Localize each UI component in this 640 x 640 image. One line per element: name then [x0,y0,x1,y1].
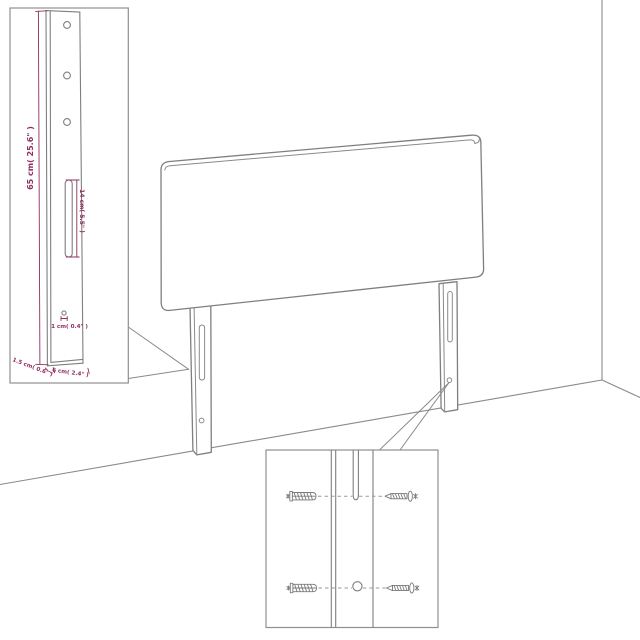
leg-detail-inset: 65 cm( 25.6" ) 14 cm( 5.5" ) 1 cm( 0.4" … [10,8,128,383]
headboard-panel [161,135,484,310]
inset-frame [266,450,438,628]
callout-line [128,327,188,369]
callout-line [400,383,449,450]
hardware-detail-inset [266,450,438,628]
headboard [161,135,484,455]
panel-outline [161,135,484,310]
assembly-diagram: 65 cm( 25.6" ) 14 cm( 5.5" ) 1 cm( 0.4" … [0,0,640,640]
wall-plug-icon [287,583,317,592]
headboard-left-leg [190,304,211,455]
right-leg-slot [448,292,453,342]
left-leg-slot [199,325,204,380]
dimension-height-label: 65 cm( 25.6" ) [26,126,35,190]
right-leg-hole [447,378,452,383]
leg-left-inner-edge [50,11,51,362]
diagram-canvas: 65 cm( 25.6" ) 14 cm( 5.5" ) 1 cm( 0.4" … [0,0,640,640]
dimension-tick [36,11,47,12]
floor-line-right [602,380,640,398]
wall-plug-icon [286,492,316,501]
dimension-tick [36,364,49,365]
callout-line [128,369,188,378]
leg-inset-callout [128,327,188,379]
dimension-hole-label: 1 cm( 0.4" ) [51,324,88,330]
dimension-slot-label: 14 cm( 5.5" ) [78,189,85,233]
left-leg-hole [199,418,204,423]
